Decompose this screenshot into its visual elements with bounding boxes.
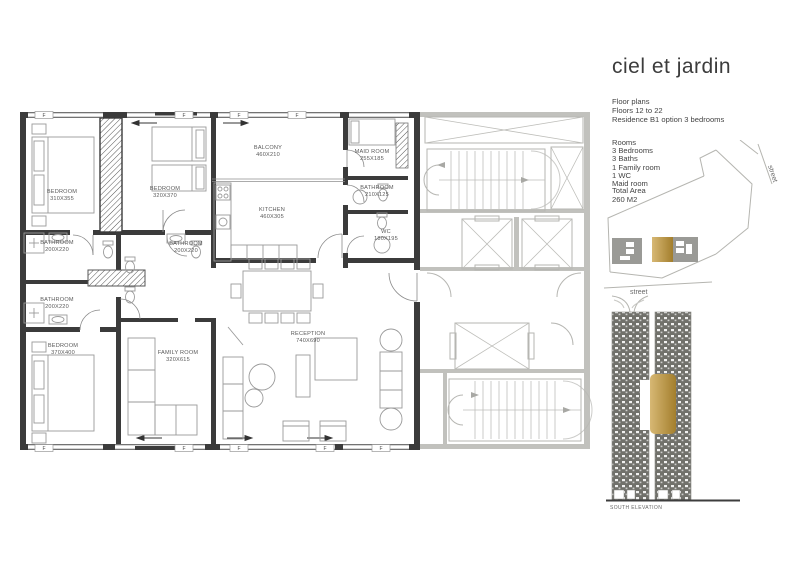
window-marker: F xyxy=(237,113,240,119)
room-dims-kitchen: 460X305 xyxy=(260,214,284,220)
service-elevator xyxy=(450,323,534,369)
description-line: Residence B1 option 3 bedrooms xyxy=(612,115,724,124)
window-marker: F xyxy=(182,446,185,452)
south-elevation: SOUTH ELEVATION xyxy=(600,298,760,530)
access-roads xyxy=(614,300,644,308)
description-line: Floor plans xyxy=(612,97,724,106)
elevator-right xyxy=(522,216,572,270)
elevation-caption: SOUTH ELEVATION xyxy=(610,505,662,511)
room-label-maidroom: MAID ROOM xyxy=(355,149,390,155)
street-label-horizontal: street xyxy=(630,289,648,296)
interior-walls xyxy=(20,112,420,450)
room-dims-bathroom4: 210X125 xyxy=(365,192,389,198)
highlighted-floors xyxy=(650,374,676,434)
site-boundary xyxy=(604,140,772,312)
description-line: Floors 12 to 22 xyxy=(612,106,724,115)
window-marker: F xyxy=(295,113,298,119)
room-dims-reception: 740X690 xyxy=(296,338,320,344)
elevator-left xyxy=(462,216,512,270)
room-label-bathroom4: BATHROOM xyxy=(360,185,394,191)
lower-staircase xyxy=(448,379,592,441)
core-shaft xyxy=(551,147,583,209)
room-label-reception: RECEPTION xyxy=(291,331,325,337)
room-dims-wc: 180X195 xyxy=(374,236,398,242)
room-dims-bathroom3: 200X220 xyxy=(45,304,69,310)
room-label-kitchen: KITCHEN xyxy=(259,207,285,213)
room-label-bedroom3: BEDROOM xyxy=(48,343,78,349)
bath-fixtures xyxy=(24,184,390,324)
core-corridor xyxy=(425,117,583,143)
site-buildings xyxy=(612,237,698,264)
floor-plan-sheet: F F F F F F F F F BEDROOM 310X355 BEDROO… xyxy=(0,0,800,565)
room-label-bathroom1: BATHROOM xyxy=(40,240,74,246)
room-label-bathroom3: BATHROOM xyxy=(40,297,74,303)
window-marker: F xyxy=(42,446,45,452)
window-marker: F xyxy=(42,113,45,119)
page-title: ciel et jardin xyxy=(612,55,731,79)
window-marker: F xyxy=(379,446,382,452)
site-plan: street street xyxy=(600,140,800,320)
room-dims-maidroom: 255X185 xyxy=(360,156,384,162)
room-dims-bathroom2: 200X220 xyxy=(174,248,198,254)
window-marker: F xyxy=(323,446,326,452)
room-label-familyroom: FAMILY ROOM xyxy=(158,350,199,356)
room-label-bedroom1: BEDROOM xyxy=(47,189,77,195)
room-dims-bedroom1: 310X355 xyxy=(50,196,74,202)
building-core xyxy=(420,112,592,449)
floor-plan-drawing: F F F F F F F F F BEDROOM 310X355 BEDROO… xyxy=(15,105,595,457)
plan-description: Floor plans Floors 12 to 22 Residence B1… xyxy=(612,97,724,124)
room-dims-bedroom2: 320X370 xyxy=(153,193,177,199)
street-label-vertical: street xyxy=(766,164,778,183)
room-dims-familyroom: 320X615 xyxy=(166,357,190,363)
room-dims-balcony: 460X210 xyxy=(256,152,280,158)
towers xyxy=(606,312,740,501)
room-label-bathroom2: BATHROOM xyxy=(169,241,203,247)
room-dims-bathroom1: 200X220 xyxy=(45,247,69,253)
room-label-balcony: BALCONY xyxy=(254,145,282,151)
room-label-bedroom2: BEDROOM xyxy=(150,186,180,192)
room-dims-bedroom3: 370X400 xyxy=(51,350,75,356)
window-marker: F xyxy=(237,446,240,452)
upper-staircase xyxy=(424,149,560,211)
room-label-wc: WC xyxy=(381,229,391,235)
window-marker: F xyxy=(182,113,185,119)
highlighted-residence xyxy=(652,237,673,262)
